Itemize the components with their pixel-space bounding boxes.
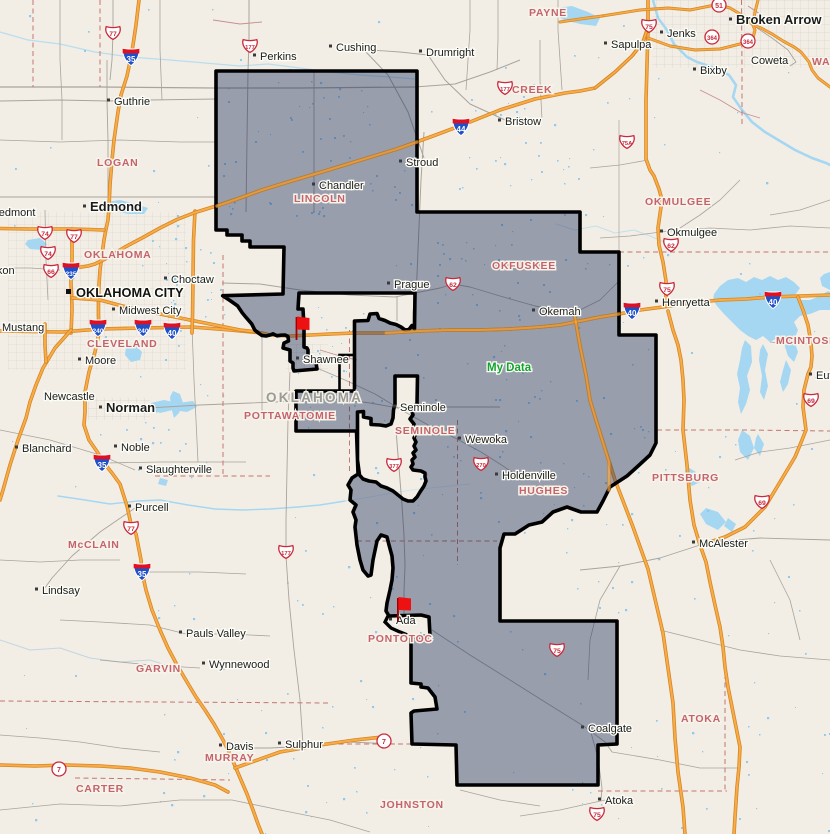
svg-text:Okmulgee: Okmulgee [667, 227, 717, 239]
svg-text:7: 7 [382, 739, 386, 746]
svg-text:PAYNE: PAYNE [529, 7, 567, 19]
svg-text:Pauls Valley: Pauls Valley [186, 628, 246, 640]
svg-text:75: 75 [663, 287, 671, 294]
svg-text:Midwest City: Midwest City [119, 305, 182, 317]
svg-text:Prague: Prague [394, 279, 429, 291]
svg-text:75A: 75A [622, 141, 633, 147]
svg-text:364: 364 [743, 40, 754, 46]
svg-text:CARTER: CARTER [76, 783, 124, 795]
svg-text:Ada: Ada [396, 615, 416, 627]
svg-text:75: 75 [645, 24, 653, 31]
svg-text:270: 270 [476, 463, 486, 469]
svg-text:Seminole: Seminole [400, 402, 446, 414]
svg-text:My Data: My Data [487, 362, 532, 374]
svg-text:177: 177 [281, 551, 291, 557]
svg-text:OKLAHOMA: OKLAHOMA [84, 249, 151, 261]
svg-text:Cushing: Cushing [336, 42, 376, 54]
svg-text:MCINTOSH: MCINTOSH [776, 335, 830, 347]
svg-text:Mustang: Mustang [2, 322, 44, 334]
svg-text:Wewoka: Wewoka [465, 434, 508, 446]
svg-text:POTTAWATOMIE: POTTAWATOMIE [244, 410, 336, 422]
svg-text:Shawnee: Shawnee [303, 354, 349, 366]
svg-text:62: 62 [449, 282, 457, 289]
svg-text:MURRAY: MURRAY [205, 752, 254, 764]
svg-text:35: 35 [98, 461, 107, 470]
svg-text:Coalgate: Coalgate [588, 723, 632, 735]
svg-text:235: 235 [65, 271, 76, 278]
svg-text:McCLAIN: McCLAIN [68, 539, 120, 551]
svg-text:Slaughterville: Slaughterville [146, 464, 212, 476]
svg-text:Bixby: Bixby [700, 65, 727, 77]
svg-text:Guthrie: Guthrie [114, 96, 150, 108]
svg-text:Eufaula: Eufaula [816, 370, 830, 382]
svg-text:Perkins: Perkins [260, 51, 297, 63]
svg-text:74: 74 [41, 231, 49, 238]
svg-text:CREEK: CREEK [512, 84, 552, 96]
svg-text:Okemah: Okemah [539, 306, 581, 318]
svg-text:7: 7 [57, 767, 61, 774]
svg-text:OKLAHOMA CITY: OKLAHOMA CITY [76, 285, 184, 300]
svg-text:Coweta: Coweta [751, 55, 789, 67]
svg-text:Jenks: Jenks [667, 28, 696, 40]
svg-text:Moore: Moore [85, 355, 116, 367]
svg-text:40: 40 [628, 309, 637, 318]
svg-text:OKLAHOMA: OKLAHOMA [266, 390, 363, 405]
svg-text:69: 69 [807, 398, 815, 405]
svg-text:HUGHES: HUGHES [519, 485, 568, 497]
svg-text:Sulphur: Sulphur [285, 739, 323, 751]
svg-text:Wynnewood: Wynnewood [209, 659, 269, 671]
svg-text:77: 77 [127, 526, 135, 533]
svg-text:Blanchard: Blanchard [22, 443, 72, 455]
svg-text:Noble: Noble [121, 442, 150, 454]
svg-text:ATOKA: ATOKA [681, 713, 721, 725]
svg-text:177: 177 [500, 87, 510, 93]
svg-text:75: 75 [553, 648, 561, 655]
svg-text:35: 35 [127, 55, 136, 64]
svg-text:Chandler: Chandler [319, 180, 364, 192]
svg-text:PITTSBURG: PITTSBURG [652, 472, 719, 484]
svg-text:Edmond: Edmond [90, 199, 142, 214]
svg-text:Atoka: Atoka [605, 795, 634, 807]
svg-text:CLEVELAND: CLEVELAND [87, 338, 157, 350]
svg-text:McAlester: McAlester [699, 538, 748, 550]
svg-text:Purcell: Purcell [135, 502, 169, 514]
svg-text:377: 377 [389, 464, 399, 470]
svg-text:Lindsay: Lindsay [42, 585, 80, 597]
svg-text:Norman: Norman [106, 400, 155, 415]
svg-text:240: 240 [92, 328, 103, 335]
svg-text:Sapulpa: Sapulpa [611, 39, 652, 51]
svg-text:77: 77 [109, 31, 117, 38]
svg-text:Piedmont: Piedmont [0, 207, 35, 219]
svg-text:Holdenville: Holdenville [502, 470, 556, 482]
svg-text:364: 364 [707, 36, 718, 42]
svg-text:WAGONER: WAGONER [812, 56, 830, 68]
svg-text:77: 77 [70, 234, 78, 241]
svg-text:Bristow: Bristow [505, 116, 541, 128]
svg-text:51: 51 [715, 3, 723, 10]
svg-text:66: 66 [47, 269, 55, 276]
svg-text:177: 177 [245, 45, 255, 51]
svg-text:74: 74 [44, 251, 52, 258]
svg-text:Broken Arrow: Broken Arrow [736, 12, 822, 27]
svg-text:62: 62 [667, 243, 675, 250]
svg-text:35: 35 [138, 570, 147, 579]
svg-text:44: 44 [457, 125, 466, 134]
svg-text:OKMULGEE: OKMULGEE [645, 196, 711, 208]
svg-text:Yukon: Yukon [0, 265, 15, 277]
svg-text:40: 40 [168, 329, 177, 338]
svg-text:240: 240 [137, 328, 148, 335]
svg-text:Drumright: Drumright [426, 47, 474, 59]
svg-text:LINCOLN: LINCOLN [294, 193, 346, 205]
svg-text:Newcastle: Newcastle [44, 391, 95, 403]
svg-text:SEMINOLE: SEMINOLE [395, 425, 455, 437]
svg-text:GARVIN: GARVIN [136, 663, 181, 675]
svg-text:OKFUSKEE: OKFUSKEE [492, 260, 556, 272]
svg-text:PONTOTOC: PONTOTOC [368, 633, 433, 645]
svg-text:40: 40 [769, 298, 778, 307]
svg-text:69: 69 [758, 500, 766, 507]
svg-text:JOHNSTON: JOHNSTON [380, 799, 444, 811]
svg-text:LOGAN: LOGAN [97, 157, 138, 169]
svg-text:75: 75 [593, 812, 601, 819]
svg-text:Stroud: Stroud [406, 157, 438, 169]
svg-text:Henryetta: Henryetta [662, 297, 711, 309]
